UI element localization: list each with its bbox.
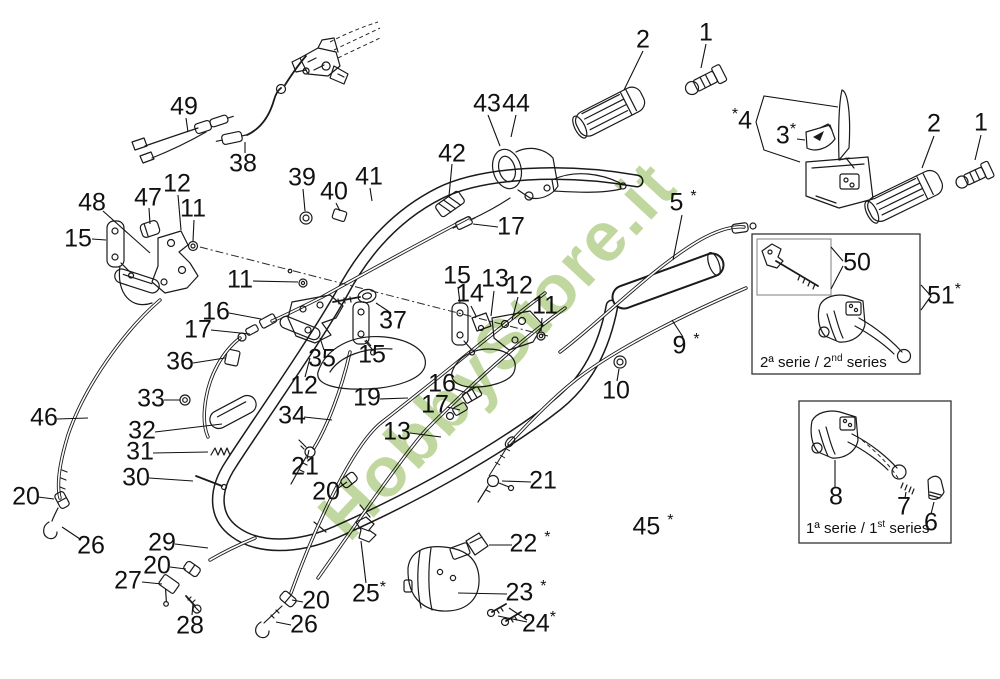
canvas-background xyxy=(0,0,1000,679)
caption-text: series xyxy=(885,520,929,537)
caption-text: 2ª serie / 2 xyxy=(760,354,831,371)
caption-text: series xyxy=(843,354,887,371)
caption-text: 1ª serie / 1 xyxy=(806,520,877,537)
diagram-canvas xyxy=(0,0,1000,679)
parts-diagram: 493848471211153940414243441721*43*215 *1… xyxy=(0,0,1000,679)
caption-sup: nd xyxy=(831,353,842,364)
inset-caption-second-series: 2ª serie / 2nd series xyxy=(760,353,887,371)
inset-caption-first-series: 1ª serie / 1st series xyxy=(806,519,929,537)
